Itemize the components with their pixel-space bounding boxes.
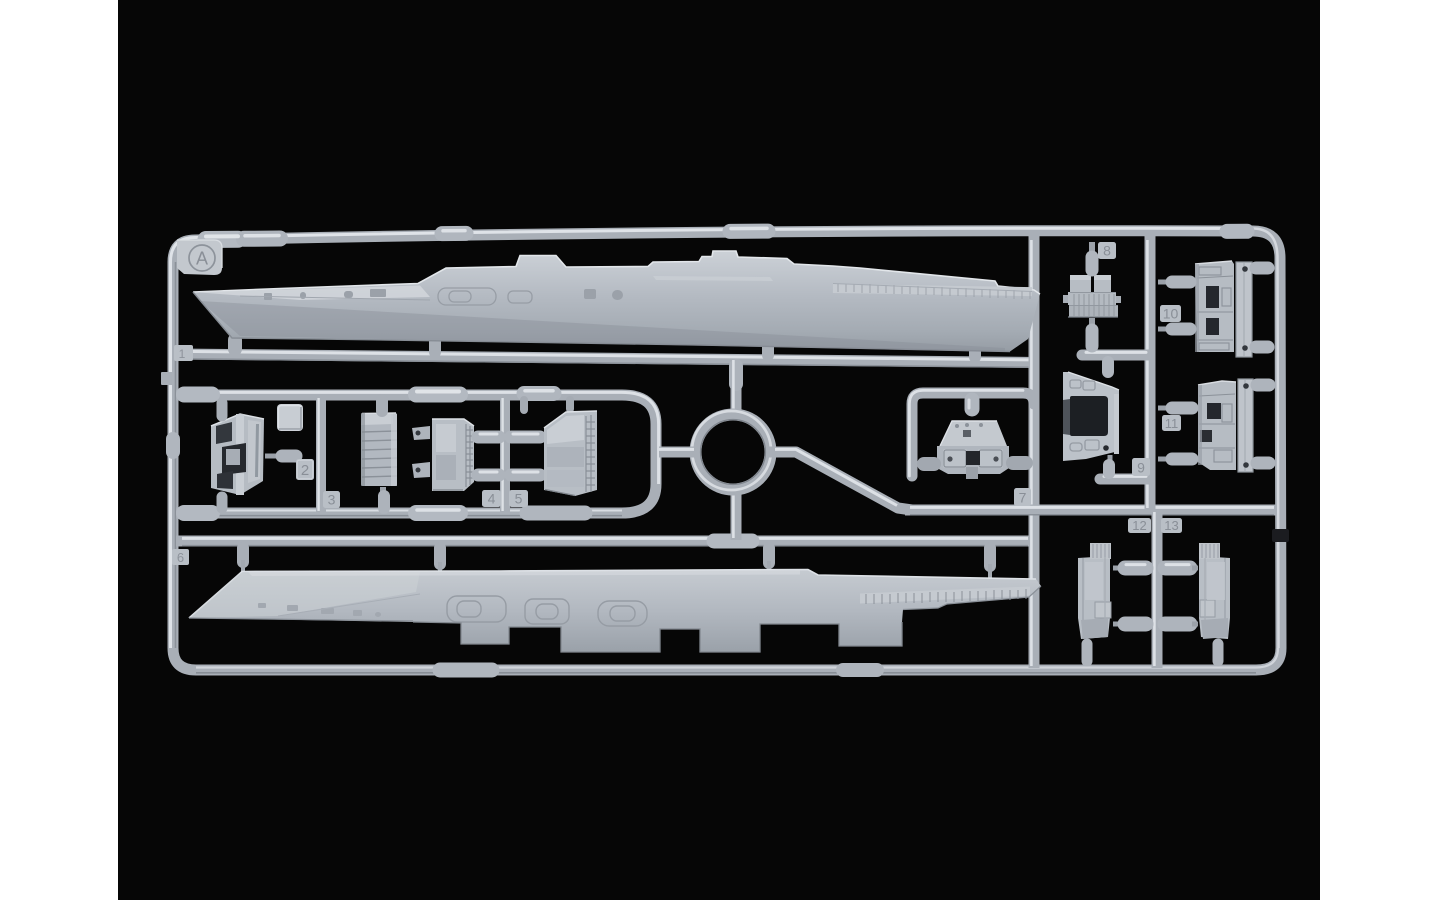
svg-text:8: 8 <box>1103 243 1111 259</box>
svg-text:11: 11 <box>1165 416 1179 431</box>
svg-text:3: 3 <box>328 492 336 508</box>
svg-text:A: A <box>196 249 208 269</box>
svg-text:6: 6 <box>177 550 184 565</box>
svg-text:1: 1 <box>179 347 186 361</box>
svg-text:4: 4 <box>488 491 496 507</box>
svg-text:12: 12 <box>1132 518 1146 533</box>
svg-text:5: 5 <box>515 491 523 507</box>
svg-text:7: 7 <box>1019 490 1027 506</box>
svg-text:2: 2 <box>301 462 309 479</box>
svg-text:13: 13 <box>1164 518 1178 533</box>
svg-text:9: 9 <box>1137 460 1145 476</box>
svg-text:10: 10 <box>1163 306 1179 322</box>
